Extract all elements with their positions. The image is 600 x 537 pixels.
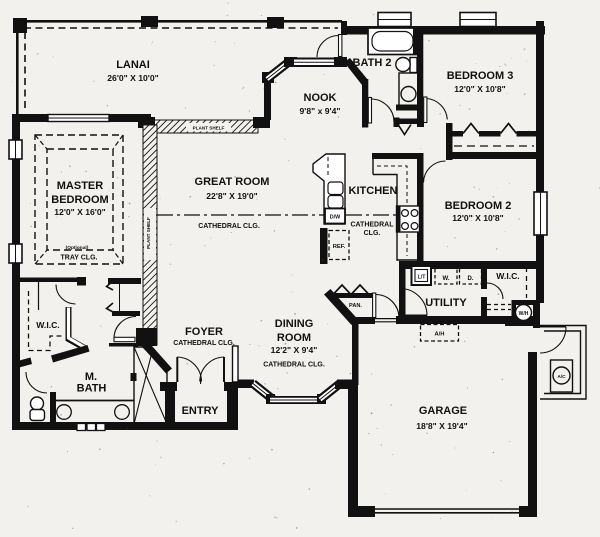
- svg-text:GREAT ROOM: GREAT ROOM: [195, 176, 270, 188]
- svg-text:L/T: L/T: [418, 275, 427, 281]
- svg-text:CLG.: CLG.: [364, 230, 381, 237]
- svg-text:W.I.C.: W.I.C.: [496, 271, 519, 281]
- svg-text:CATHEDRAL CLG.: CATHEDRAL CLG.: [263, 362, 325, 369]
- svg-text:9'8" x 9'4": 9'8" x 9'4": [300, 106, 341, 116]
- svg-text:PLANT SHELF: PLANT SHELF: [146, 217, 151, 249]
- svg-text:PLANT SHELF: PLANT SHELF: [193, 126, 225, 131]
- svg-text:UTILITY: UTILITY: [425, 297, 467, 309]
- svg-text:M.: M.: [85, 371, 97, 383]
- svg-text:W/H: W/H: [519, 311, 529, 317]
- svg-text:18'8" X 19'4": 18'8" X 19'4": [416, 421, 467, 431]
- svg-text:CATHEDRAL CLG.: CATHEDRAL CLG.: [173, 340, 235, 347]
- svg-text:GARAGE: GARAGE: [419, 405, 467, 417]
- svg-text:CATHEDRAL CLG.: CATHEDRAL CLG.: [198, 223, 260, 230]
- svg-text:BATH: BATH: [77, 383, 107, 395]
- svg-text:22'8" X 19'0": 22'8" X 19'0": [206, 191, 257, 201]
- svg-text:BEDROOM 2: BEDROOM 2: [445, 200, 512, 212]
- svg-text:MASTER: MASTER: [57, 180, 104, 192]
- svg-text:FOYER: FOYER: [185, 326, 223, 338]
- svg-text:26'0" X 10'0": 26'0" X 10'0": [107, 73, 158, 83]
- svg-text:D.: D.: [468, 276, 474, 282]
- svg-text:12'0" X 10'8": 12'0" X 10'8": [454, 84, 505, 94]
- svg-text:BATH 2: BATH 2: [353, 57, 392, 69]
- svg-text:BEDROOM 3: BEDROOM 3: [447, 70, 514, 82]
- svg-text:BEDROOM: BEDROOM: [51, 194, 108, 206]
- svg-text:NOOK: NOOK: [304, 92, 337, 104]
- svg-text:PAN.: PAN.: [349, 303, 362, 309]
- svg-text:A/C: A/C: [557, 374, 566, 380]
- svg-text:LANAI: LANAI: [116, 59, 150, 71]
- svg-text:12'0" X 16'0": 12'0" X 16'0": [54, 207, 105, 217]
- svg-text:12'2" X 9'4": 12'2" X 9'4": [271, 345, 318, 355]
- svg-text:DINING: DINING: [275, 318, 314, 330]
- svg-text:12'0" X 10'8": 12'0" X 10'8": [452, 213, 503, 223]
- svg-text:D/W: D/W: [330, 215, 341, 221]
- svg-text:KITCHEN: KITCHEN: [349, 185, 398, 197]
- svg-text:A/H: A/H: [435, 332, 445, 338]
- svg-text:W.: W.: [443, 276, 450, 282]
- svg-text:W.I.C.: W.I.C.: [36, 320, 59, 330]
- svg-text:CATHEDRAL: CATHEDRAL: [350, 222, 394, 229]
- svg-text:TRAY CLG.: TRAY CLG.: [61, 255, 98, 262]
- svg-text:(Optional): (Optional): [66, 245, 89, 251]
- svg-text:REF.: REF.: [333, 244, 346, 250]
- svg-text:ENTRY: ENTRY: [182, 405, 220, 417]
- svg-text:ROOM: ROOM: [277, 332, 311, 344]
